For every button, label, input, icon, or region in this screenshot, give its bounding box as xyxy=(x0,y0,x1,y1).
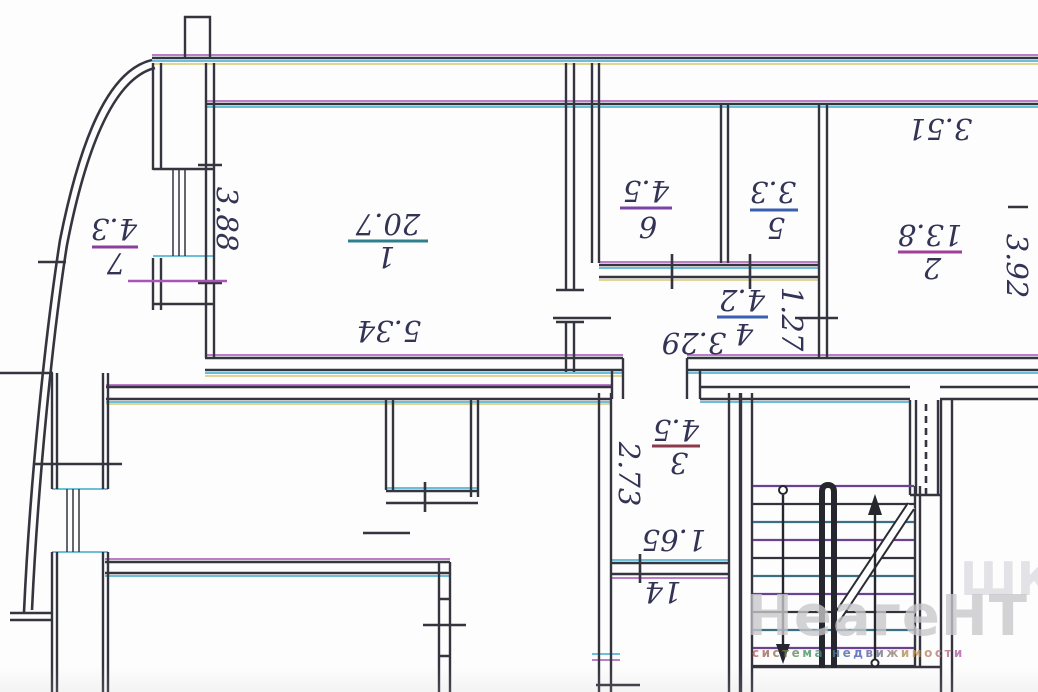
dim-room2-depth: 3.92 xyxy=(1000,234,1034,299)
room-5-area-label: 3.3 xyxy=(750,175,796,209)
room-1-number-label: 1 xyxy=(377,240,395,274)
dim-corridor-width: 1.65 xyxy=(642,523,707,557)
room-6-number-label: 6 xyxy=(639,210,657,244)
scan-shadow xyxy=(0,666,1038,692)
dim-room2-width: 3.51 xyxy=(908,112,973,146)
watermark-tagline: система недвижимости xyxy=(752,646,965,660)
room-7-number-label: 7 xyxy=(106,246,125,280)
dim-hall-width: 3.29 xyxy=(662,326,727,360)
dim-room1-width: 5.34 xyxy=(357,314,422,348)
dim-hall-depth: 1.27 xyxy=(775,287,809,352)
door-ticks xyxy=(33,165,1028,656)
room-1-area-label: 20.7 xyxy=(355,207,421,241)
room-5-number-label: 5 xyxy=(767,211,785,245)
room-2-number-label: 2 xyxy=(923,251,942,285)
room-6-area-label: 4.5 xyxy=(623,174,670,208)
room-3-area-label: 4.5 xyxy=(653,413,700,447)
room-4-number-label: 4 xyxy=(735,317,754,351)
room-14-number-label: 14 xyxy=(645,575,682,609)
floor-plan-scan: 4.3 7 3.88 20.7 1 5.34 4.5 6 3.3 5 4.2 4… xyxy=(0,0,1038,692)
dim-corridor-depth: 2.73 xyxy=(612,441,646,507)
room-4-area-label: 4.2 xyxy=(719,283,766,317)
room-3-number-label: 3 xyxy=(670,446,688,480)
curved-balcony-wall xyxy=(24,60,155,612)
room-2-area-label: 13.8 xyxy=(898,218,963,252)
room-7-area-label: 4.3 xyxy=(91,212,138,246)
dim-balcony-depth: 3.88 xyxy=(210,187,244,252)
watermark-brand: НеагеНТ xyxy=(746,584,1028,649)
